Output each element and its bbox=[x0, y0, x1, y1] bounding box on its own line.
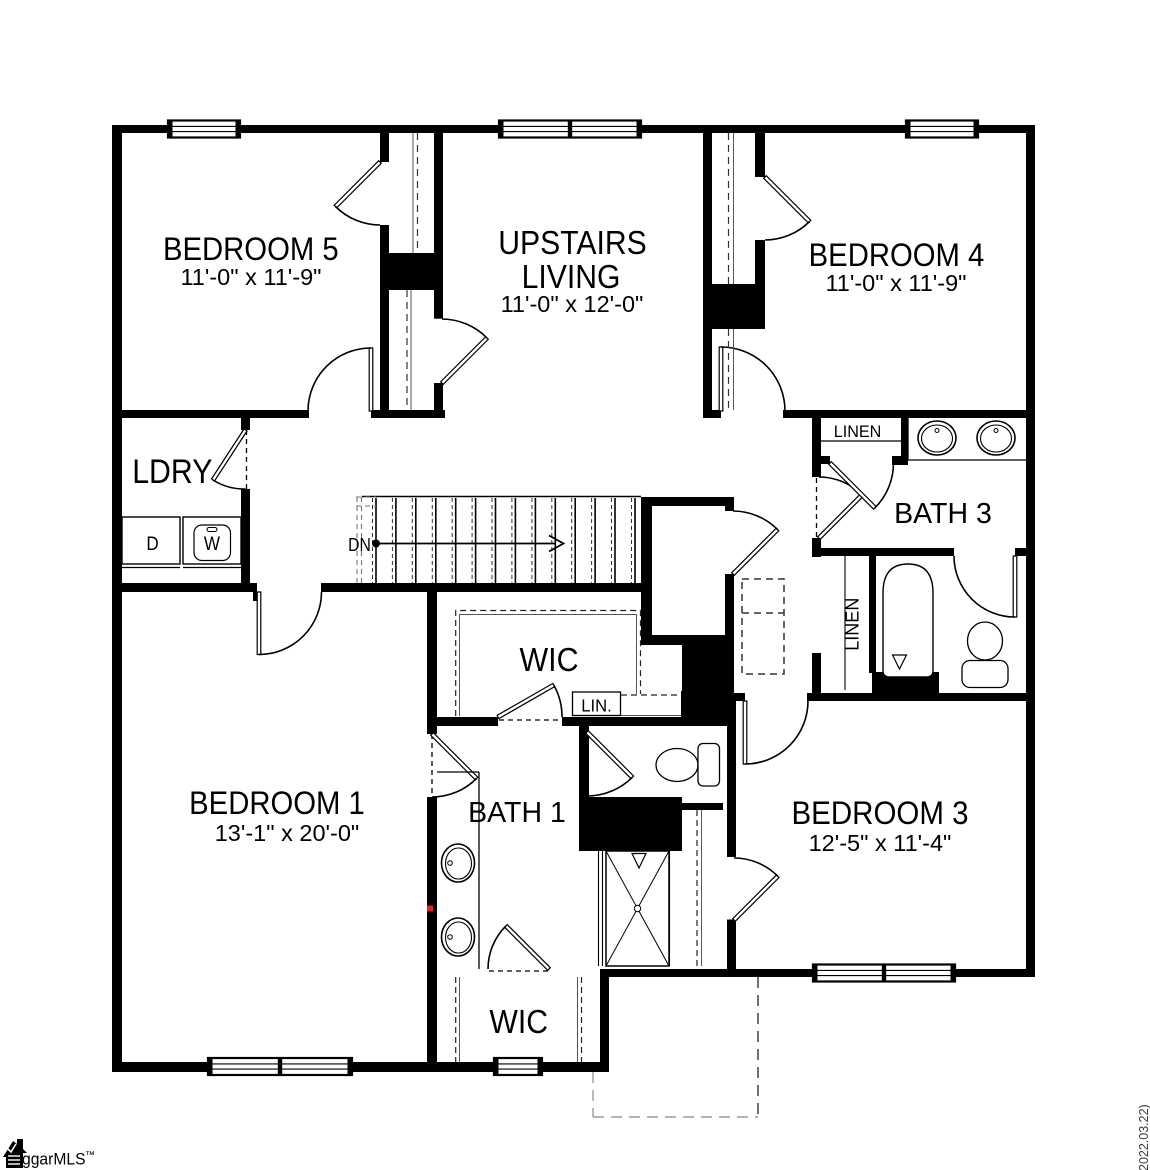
svg-text:DN: DN bbox=[348, 534, 371, 556]
svg-text:BEDROOM 3: BEDROOM 3 bbox=[791, 795, 968, 832]
svg-text:WIC: WIC bbox=[520, 641, 579, 679]
svg-text:WIC: WIC bbox=[489, 1003, 548, 1041]
svg-text:BEDROOM 5: BEDROOM 5 bbox=[163, 230, 339, 267]
svg-text:™: ™ bbox=[85, 1150, 95, 1161]
svg-text:BEDROOM 1: BEDROOM 1 bbox=[189, 784, 365, 821]
svg-text:13'-1" x 20'-0": 13'-1" x 20'-0" bbox=[215, 820, 360, 846]
svg-text:LINEN: LINEN bbox=[834, 422, 882, 441]
svg-text:BEDROOM 4: BEDROOM 4 bbox=[809, 236, 985, 273]
svg-text:12'-5" x 11'-4": 12'-5" x 11'-4" bbox=[809, 830, 952, 856]
svg-text:D: D bbox=[146, 533, 158, 554]
svg-text:11'-0" x 12'-0": 11'-0" x 12'-0" bbox=[501, 291, 644, 317]
svg-text:BATH 1: BATH 1 bbox=[468, 797, 566, 829]
svg-text:LIVING: LIVING bbox=[522, 258, 621, 296]
svg-text:UPSTAIRS: UPSTAIRS bbox=[498, 224, 647, 262]
svg-text:LIN.: LIN. bbox=[581, 696, 611, 715]
svg-text:11'-0" x 11'-9": 11'-0" x 11'-9" bbox=[825, 270, 966, 296]
svg-text:LDRY: LDRY bbox=[132, 452, 212, 490]
svg-text:11'-0" x 11'-9": 11'-0" x 11'-9" bbox=[180, 264, 321, 290]
svg-text:2022.03.22): 2022.03.22) bbox=[1137, 1104, 1150, 1170]
svg-text:LINEN: LINEN bbox=[843, 598, 863, 651]
svg-text:BATH 3: BATH 3 bbox=[894, 498, 992, 530]
svg-text:ggarMLS: ggarMLS bbox=[22, 1150, 86, 1168]
svg-text:W: W bbox=[204, 533, 220, 554]
